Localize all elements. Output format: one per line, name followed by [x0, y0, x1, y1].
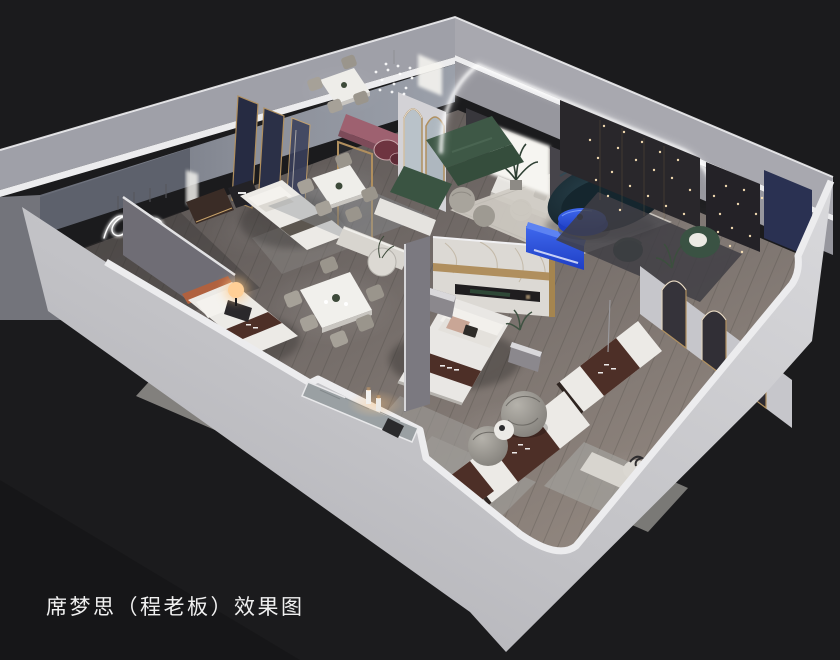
- gray-slab-wall: [404, 236, 430, 412]
- glow-lamp: [219, 273, 253, 307]
- caption: 席梦思（程老板）效果图: [46, 591, 305, 621]
- green-armchair: [680, 226, 720, 258]
- render-canvas: 席梦思（程老板）效果图: [0, 0, 840, 660]
- pouf: [449, 187, 475, 213]
- floorplan-render: [0, 0, 840, 660]
- pouf: [473, 205, 495, 227]
